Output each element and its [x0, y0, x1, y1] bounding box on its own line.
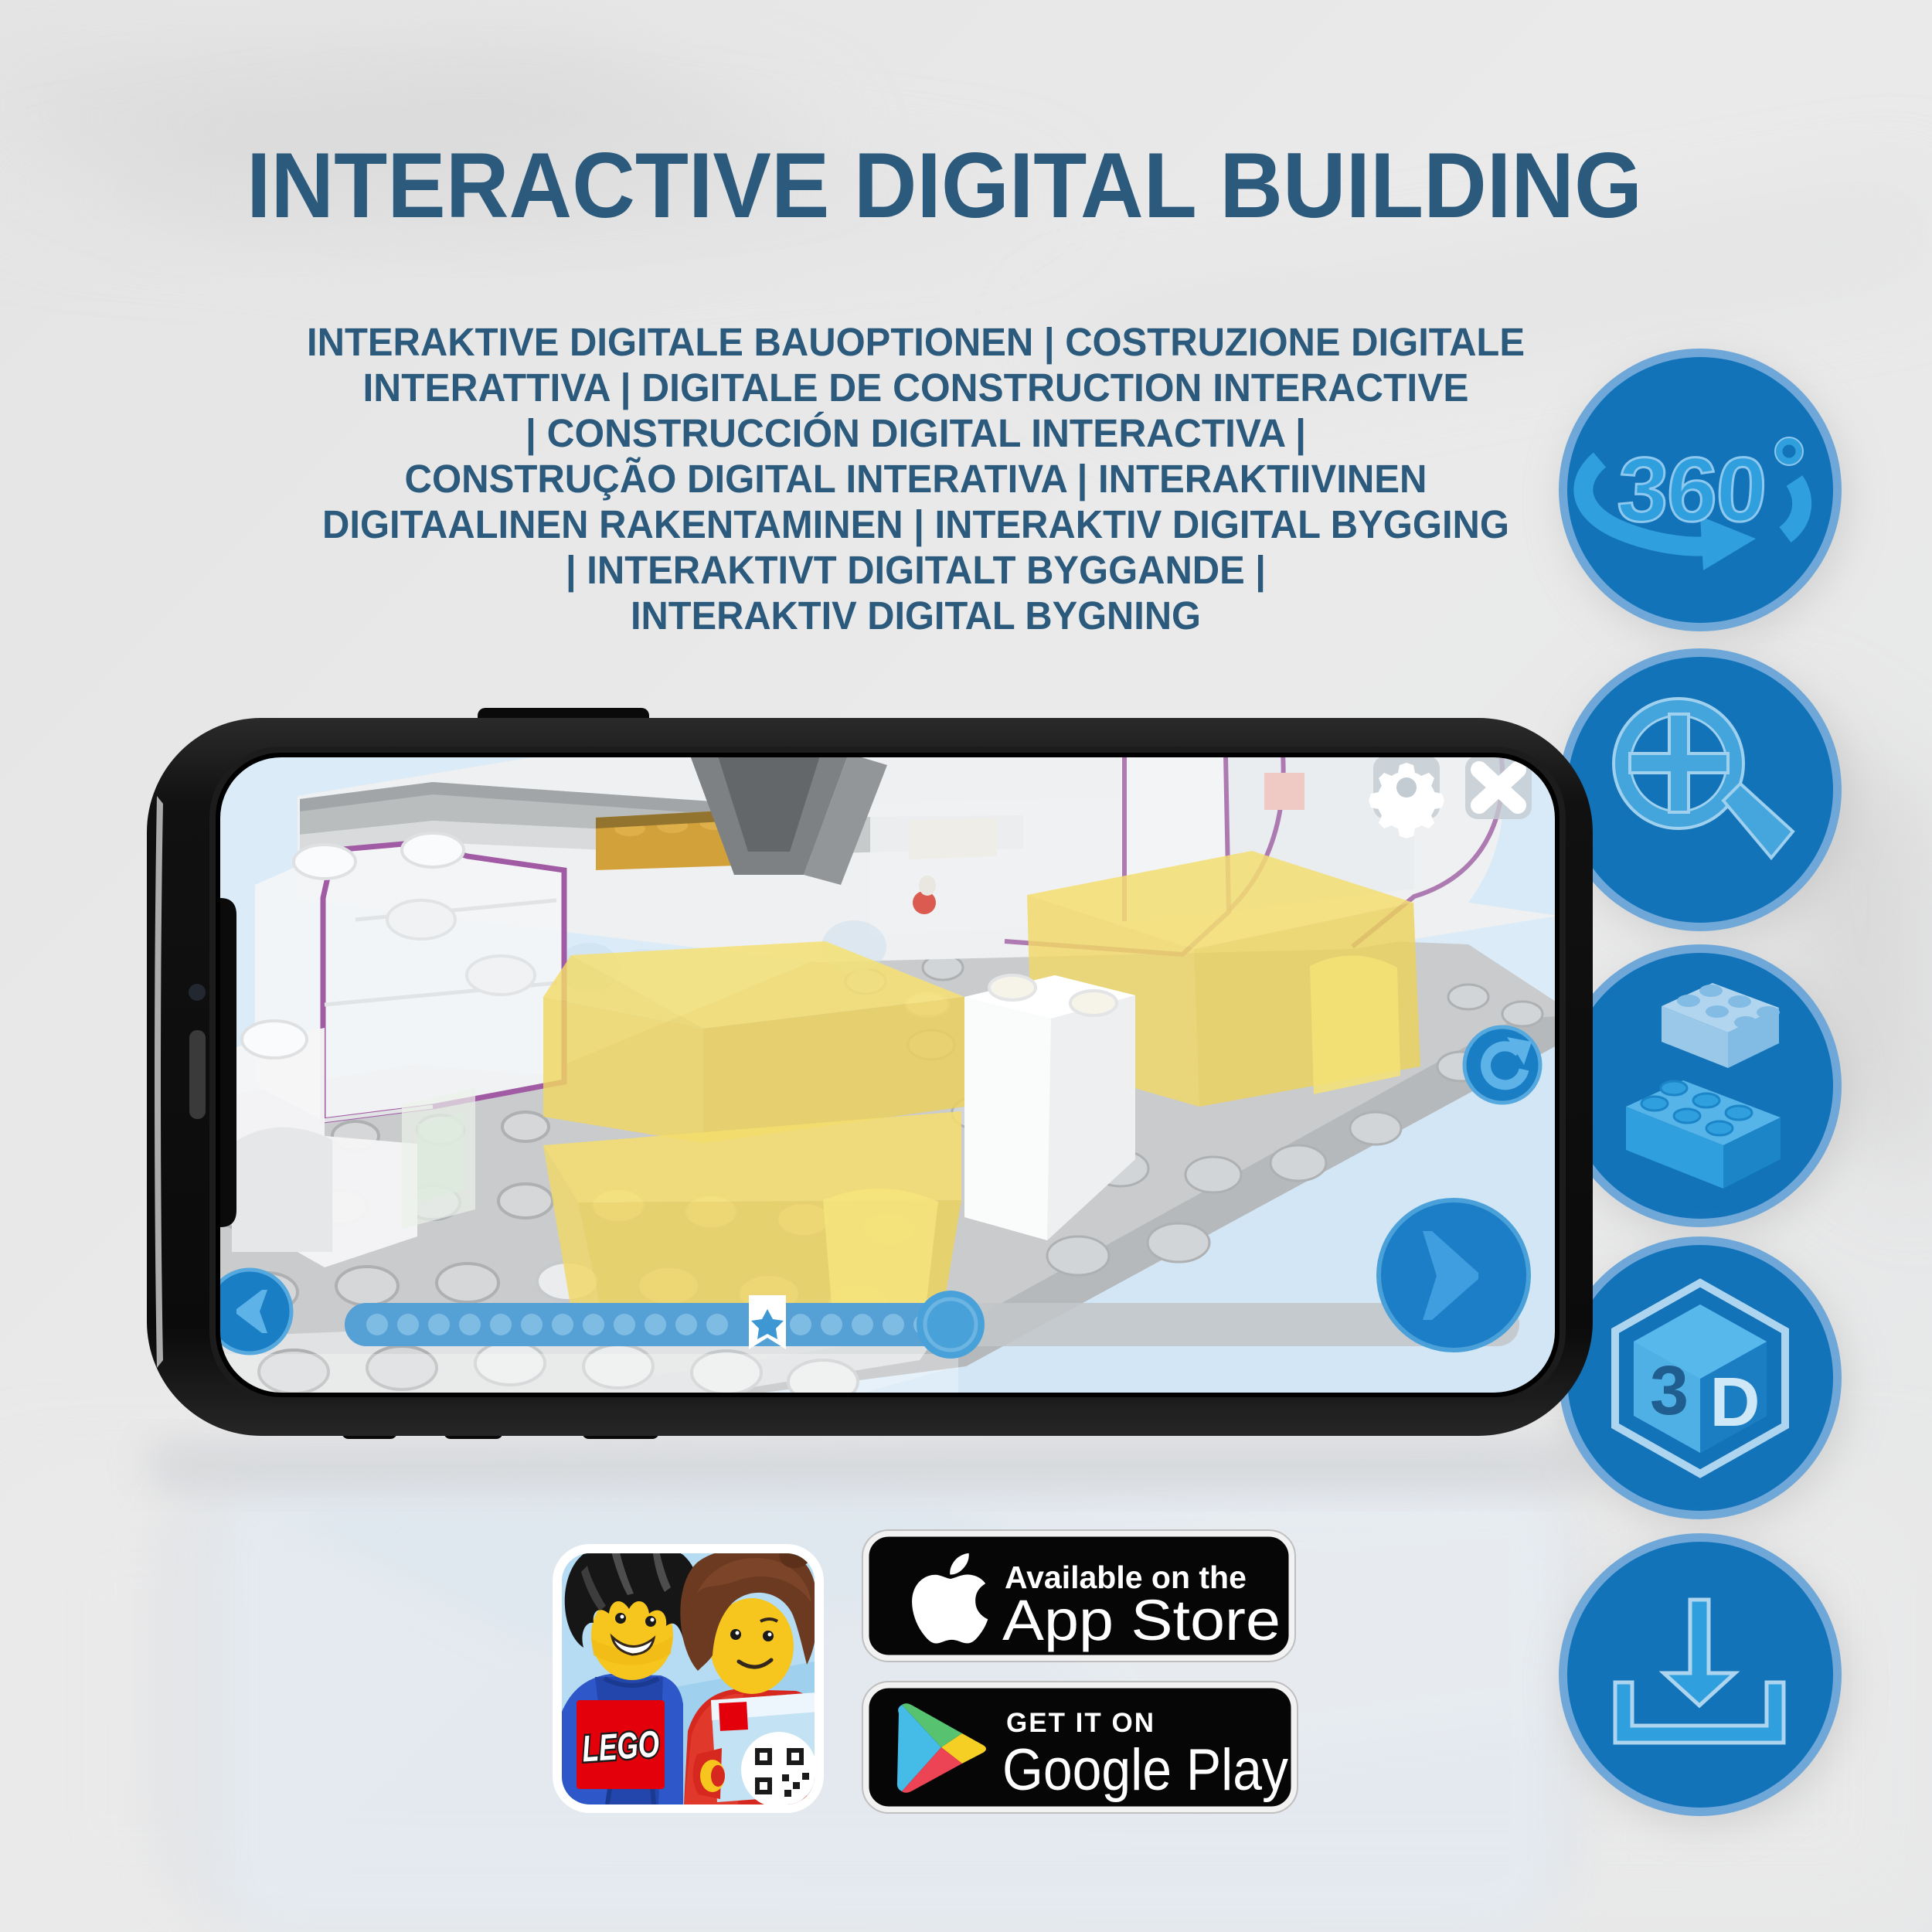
svg-text:| CONSTRUCCIÓN DIGITAL INTERAC: | CONSTRUCCIÓN DIGITAL INTERACTIVA | [526, 411, 1306, 456]
svg-text:DIGITAALINEN RAKENTAMINEN | IN: DIGITAALINEN RAKENTAMINEN | INTERAKTIV D… [322, 502, 1509, 547]
svg-text:Google Play: Google Play [1002, 1737, 1288, 1803]
svg-text:D: D [1710, 1364, 1760, 1441]
svg-text:3: 3 [1650, 1352, 1689, 1430]
svg-text:LEGO: LEGO [580, 1724, 660, 1770]
svg-text:CONSTRUÇÃO DIGITAL INTERATIVA: CONSTRUÇÃO DIGITAL INTERATIVA | INTERAKT… [405, 456, 1427, 502]
svg-text:INTERAKTIVE DIGITALE BAUOPTION: INTERAKTIVE DIGITALE BAUOPTIONEN | COSTR… [307, 320, 1525, 365]
svg-text:360: 360 [1615, 439, 1768, 541]
svg-text:GET IT ON: GET IT ON [1006, 1708, 1155, 1738]
svg-text:INTERATTIVA | DIGITALE DE CONS: INTERATTIVA | DIGITALE DE CONSTRUCTION I… [363, 366, 1469, 410]
svg-text:| INTERAKTIVT DIGITALT BYGGAND: | INTERAKTIVT DIGITALT BYGGANDE | [566, 548, 1266, 593]
svg-text:INTERAKTIV DIGITAL BYGNING: INTERAKTIV DIGITAL BYGNING [631, 594, 1201, 638]
svg-text:App Store: App Store [1002, 1588, 1281, 1652]
svg-text:INTERACTIVE DIGITAL BUILDING: INTERACTIVE DIGITAL BUILDING [247, 134, 1642, 237]
